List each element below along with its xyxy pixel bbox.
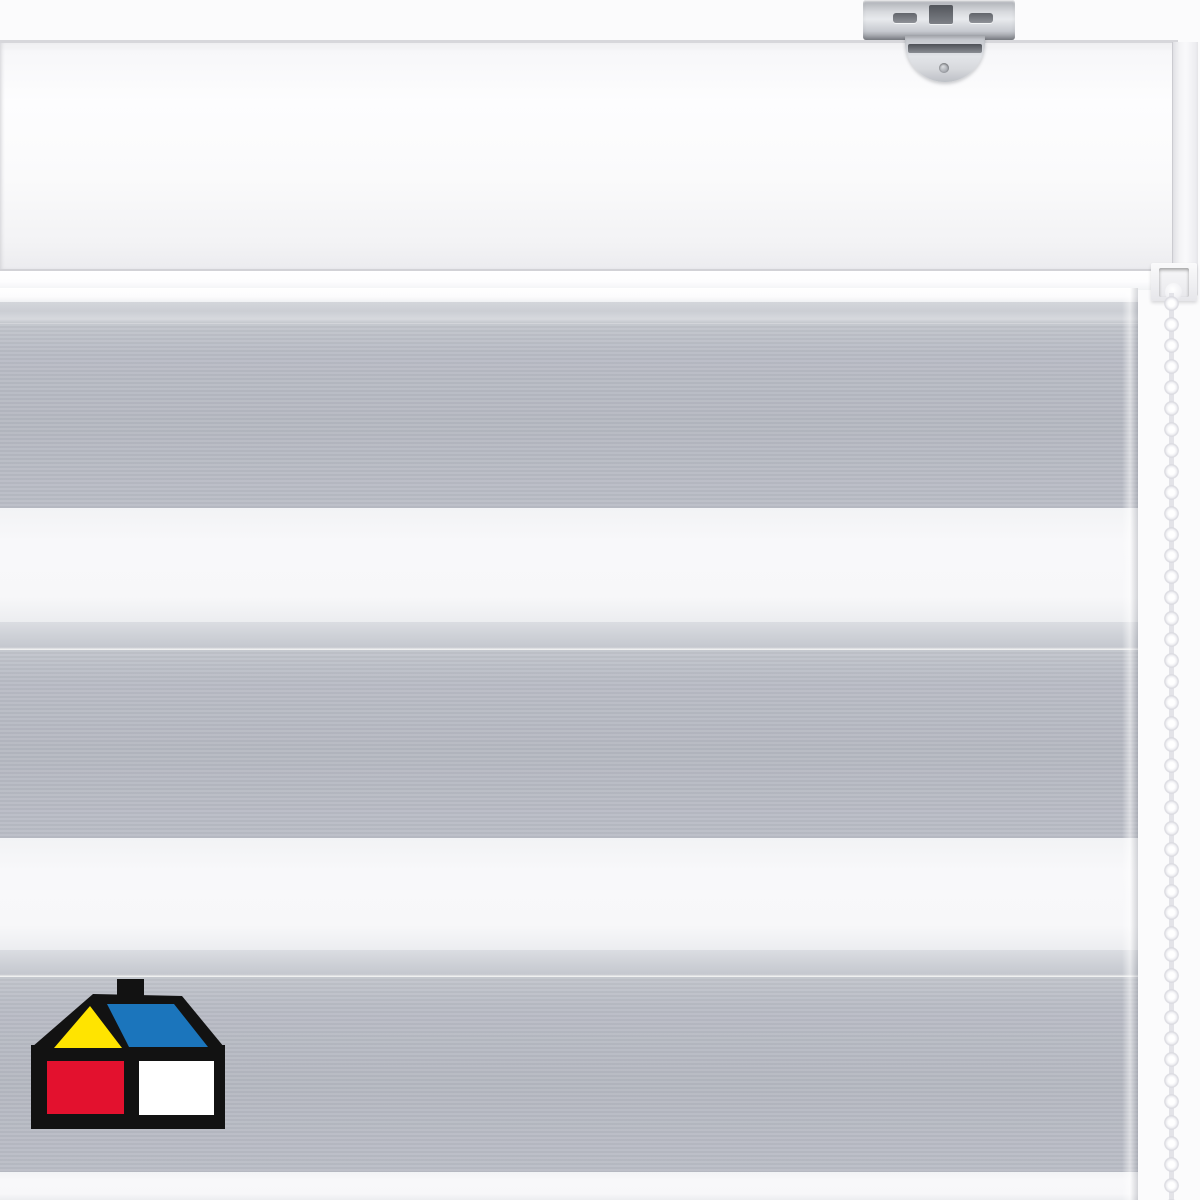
bead-pull-chain[interactable] [1163, 293, 1180, 1200]
bracket-center-tab [929, 5, 953, 24]
sheer-band-2 [0, 838, 1138, 950]
fabric-top-highlight [0, 288, 1138, 302]
logo-red-window [47, 1061, 124, 1114]
ceiling-bracket-plate [863, 0, 1015, 40]
blind-headrail [0, 40, 1178, 271]
logo-white-window [139, 1061, 214, 1115]
solid-band-2 [0, 650, 1138, 838]
fabric-roll-edge [0, 302, 1138, 324]
overlap-strip-2 [0, 950, 1138, 977]
product-photo-zebra-roller-blind [0, 0, 1200, 1200]
solid-band-1 [0, 324, 1138, 508]
headrail-end-cap [1172, 42, 1198, 298]
bracket-slot-right [969, 13, 993, 23]
sheer-band-3 [0, 1172, 1138, 1200]
homecenter-house-logo [31, 978, 225, 1129]
bracket-slot-left [893, 13, 917, 23]
bracket-screw-hole [939, 63, 949, 73]
bracket-clip-slot [908, 44, 982, 53]
overlap-strip-1 [0, 622, 1138, 650]
sheer-band-1 [0, 508, 1138, 622]
